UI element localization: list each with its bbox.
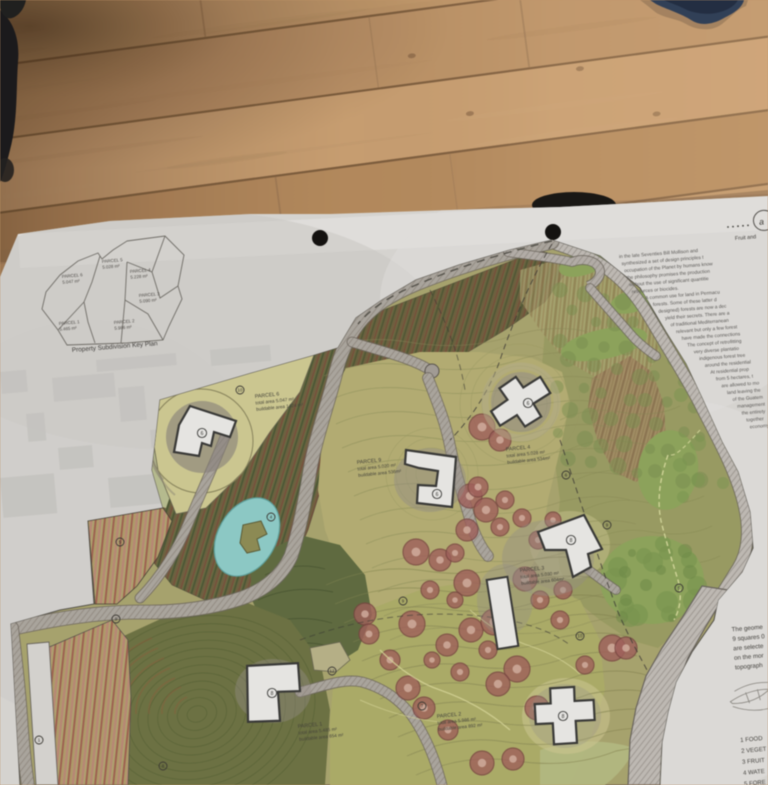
svg-text:6: 6 xyxy=(527,401,530,407)
svg-text:6: 6 xyxy=(201,431,204,437)
svg-text:8: 8 xyxy=(562,714,565,720)
svg-text:10: 10 xyxy=(578,634,583,639)
svg-text:12: 12 xyxy=(330,669,335,674)
svg-text:8: 8 xyxy=(271,691,274,697)
svg-text:8: 8 xyxy=(570,538,573,544)
svg-text:6: 6 xyxy=(436,492,439,498)
svg-text:10: 10 xyxy=(238,388,243,393)
svg-text:5 FORE: 5 FORE xyxy=(744,780,766,785)
